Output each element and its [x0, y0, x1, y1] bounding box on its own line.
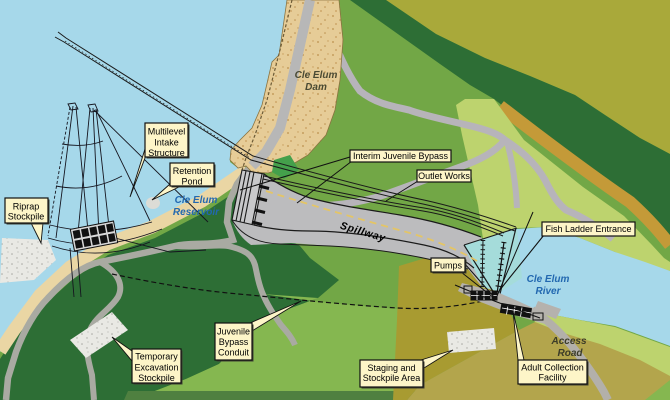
svg-text:Riprap: Riprap: [13, 202, 40, 212]
svg-text:Stockpile: Stockpile: [8, 212, 45, 222]
svg-text:Bypass: Bypass: [219, 337, 249, 347]
svg-text:Reservoir: Reservoir: [173, 207, 220, 218]
svg-text:Cle Elum: Cle Elum: [527, 274, 570, 285]
svg-text:Pumps: Pumps: [434, 261, 463, 271]
svg-text:Road: Road: [558, 348, 584, 359]
svg-text:River: River: [535, 286, 561, 297]
svg-text:Facility: Facility: [538, 373, 567, 383]
svg-text:Cle Elum: Cle Elum: [175, 195, 218, 206]
svg-text:Cle Elum: Cle Elum: [295, 70, 338, 81]
svg-text:Retention: Retention: [173, 166, 212, 176]
svg-text:Staging and: Staging and: [367, 363, 415, 373]
svg-text:Temporary: Temporary: [135, 352, 178, 362]
svg-text:Pond: Pond: [181, 177, 202, 187]
svg-text:Adult Collection: Adult Collection: [521, 363, 584, 373]
svg-text:Conduit: Conduit: [218, 348, 250, 358]
svg-text:Fish Ladder Entrance: Fish Ladder Entrance: [545, 224, 631, 234]
svg-text:Multilevel: Multilevel: [148, 127, 186, 137]
svg-text:Interim Juvenile Bypass: Interim Juvenile Bypass: [353, 151, 449, 161]
svg-text:Stockpile: Stockpile: [138, 373, 175, 383]
svg-text:Excavation: Excavation: [134, 363, 178, 373]
svg-text:Access: Access: [550, 336, 586, 347]
svg-text:Dam: Dam: [305, 82, 327, 93]
svg-text:Outlet Works: Outlet Works: [418, 171, 470, 181]
svg-text:Structure: Structure: [148, 148, 185, 158]
svg-text:Juvenile: Juvenile: [217, 327, 250, 337]
svg-text:Intake: Intake: [154, 138, 179, 148]
svg-text:Stockpile Area: Stockpile Area: [363, 373, 421, 383]
